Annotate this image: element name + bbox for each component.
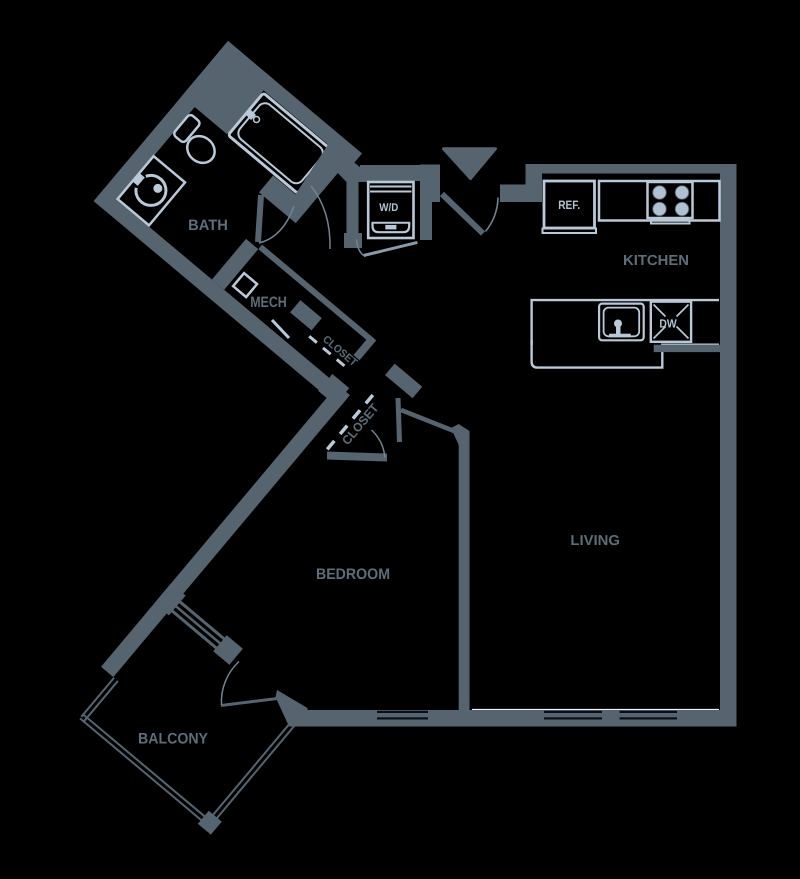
- svg-text:BEDROOM: BEDROOM: [316, 566, 390, 583]
- svg-text:REF.: REF.: [558, 198, 580, 212]
- svg-text:KITCHEN: KITCHEN: [623, 253, 689, 269]
- svg-text:LIVING: LIVING: [570, 533, 620, 549]
- svg-text:MECH: MECH: [250, 294, 287, 311]
- svg-text:BALCONY: BALCONY: [138, 730, 208, 747]
- svg-text:W/D: W/D: [379, 202, 398, 214]
- svg-text:DW: DW: [659, 316, 677, 330]
- svg-text:BATH: BATH: [188, 217, 228, 234]
